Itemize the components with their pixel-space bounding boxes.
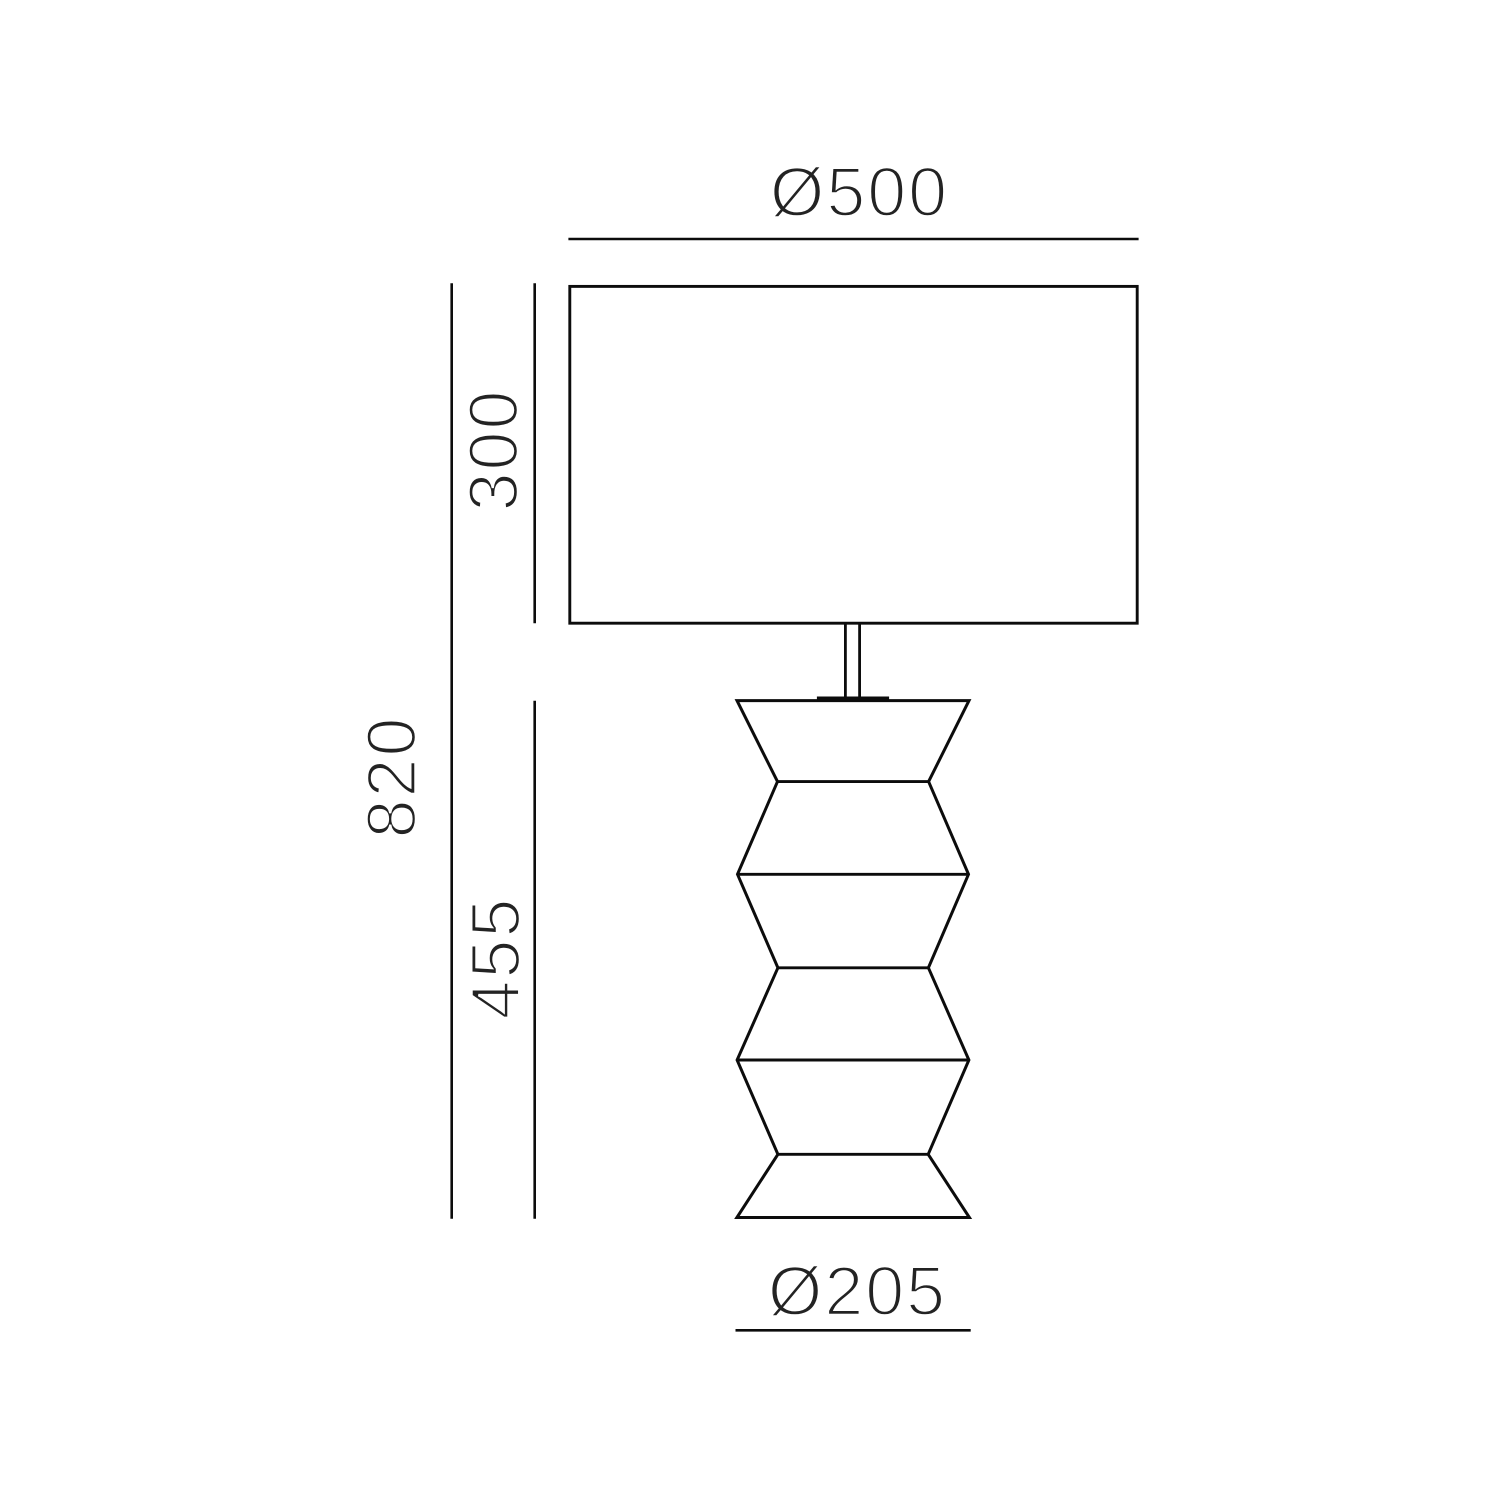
svg-text:300: 300: [455, 389, 533, 512]
svg-text:Ø500: Ø500: [770, 153, 949, 231]
svg-text:820: 820: [353, 716, 431, 839]
svg-text:455: 455: [457, 897, 535, 1020]
svg-text:Ø205: Ø205: [768, 1252, 947, 1330]
